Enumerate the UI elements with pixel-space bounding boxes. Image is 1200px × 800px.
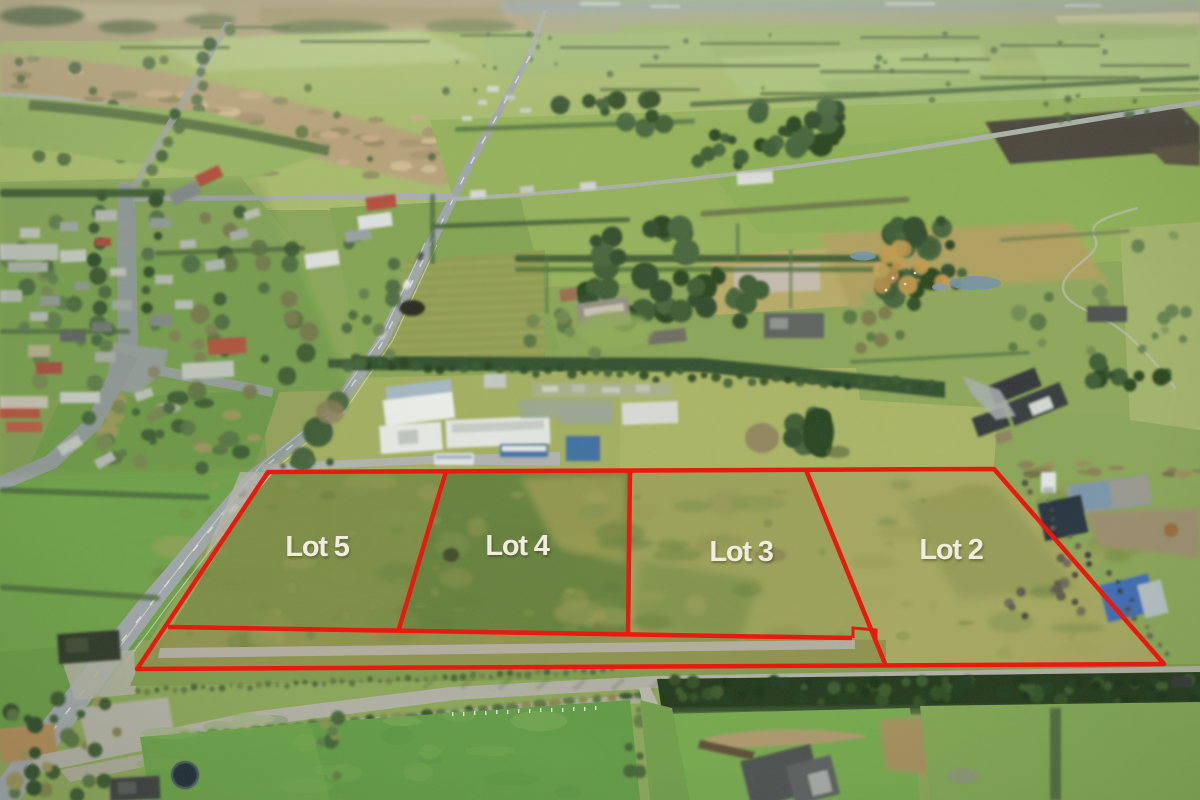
- svg-text:Lot 2: Lot 2: [919, 534, 982, 566]
- svg-text:Lot 5: Lot 5: [285, 531, 349, 563]
- svg-text:Lot 4: Lot 4: [485, 530, 549, 562]
- svg-text:Lot 3: Lot 3: [709, 536, 773, 568]
